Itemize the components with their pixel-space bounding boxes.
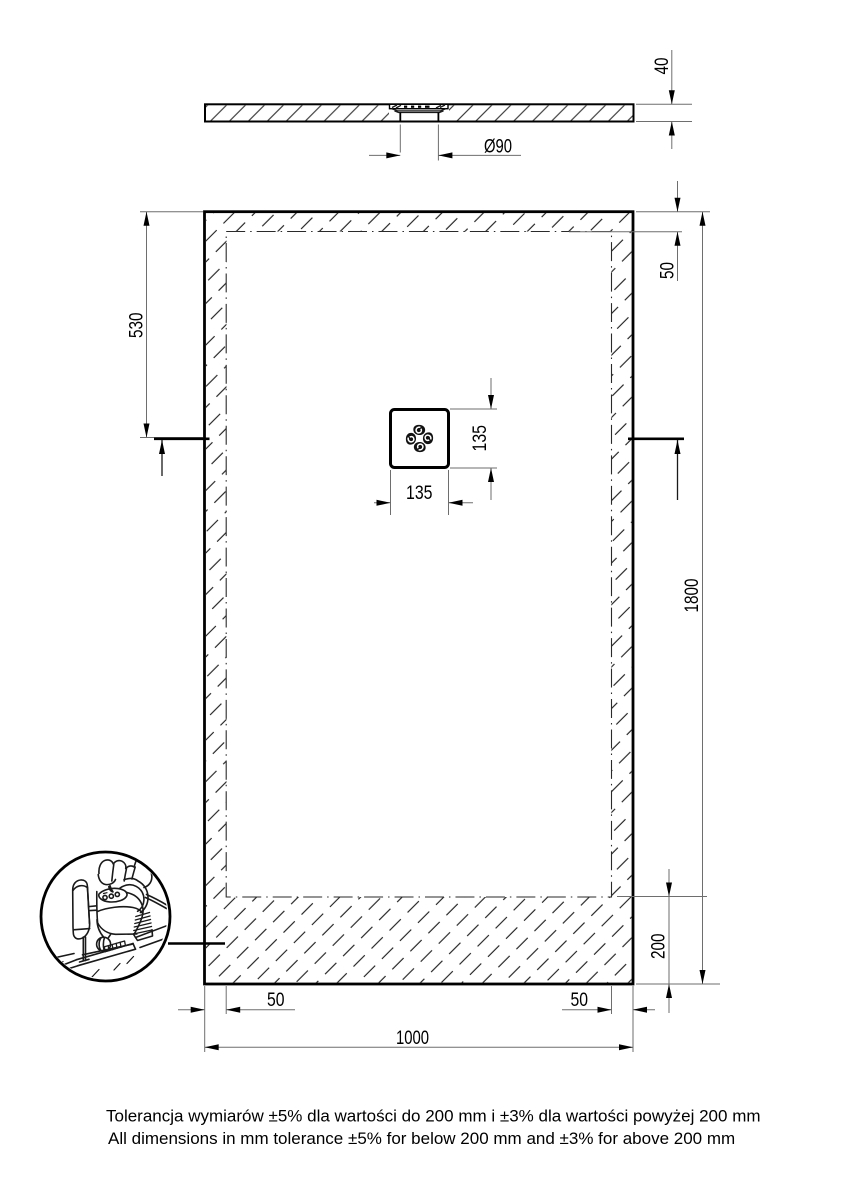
- svg-text:1800: 1800: [681, 578, 703, 612]
- svg-text:135: 135: [469, 425, 491, 452]
- svg-text:135: 135: [406, 482, 433, 504]
- svg-text:530: 530: [126, 312, 148, 338]
- svg-text:1000: 1000: [396, 1027, 429, 1049]
- svg-text:50: 50: [267, 989, 285, 1011]
- svg-text:50: 50: [657, 262, 679, 279]
- svg-text:50: 50: [571, 989, 589, 1011]
- svg-text:Ø90: Ø90: [484, 135, 512, 157]
- svg-text:200: 200: [648, 933, 670, 959]
- svg-text:Tolerancja wymiarów ±5% dla wa: Tolerancja wymiarów ±5% dla wartości do …: [106, 1107, 761, 1126]
- svg-text:40: 40: [651, 57, 673, 74]
- svg-text:All dimensions in mm tolerance: All dimensions in mm tolerance ±5% for b…: [108, 1129, 735, 1148]
